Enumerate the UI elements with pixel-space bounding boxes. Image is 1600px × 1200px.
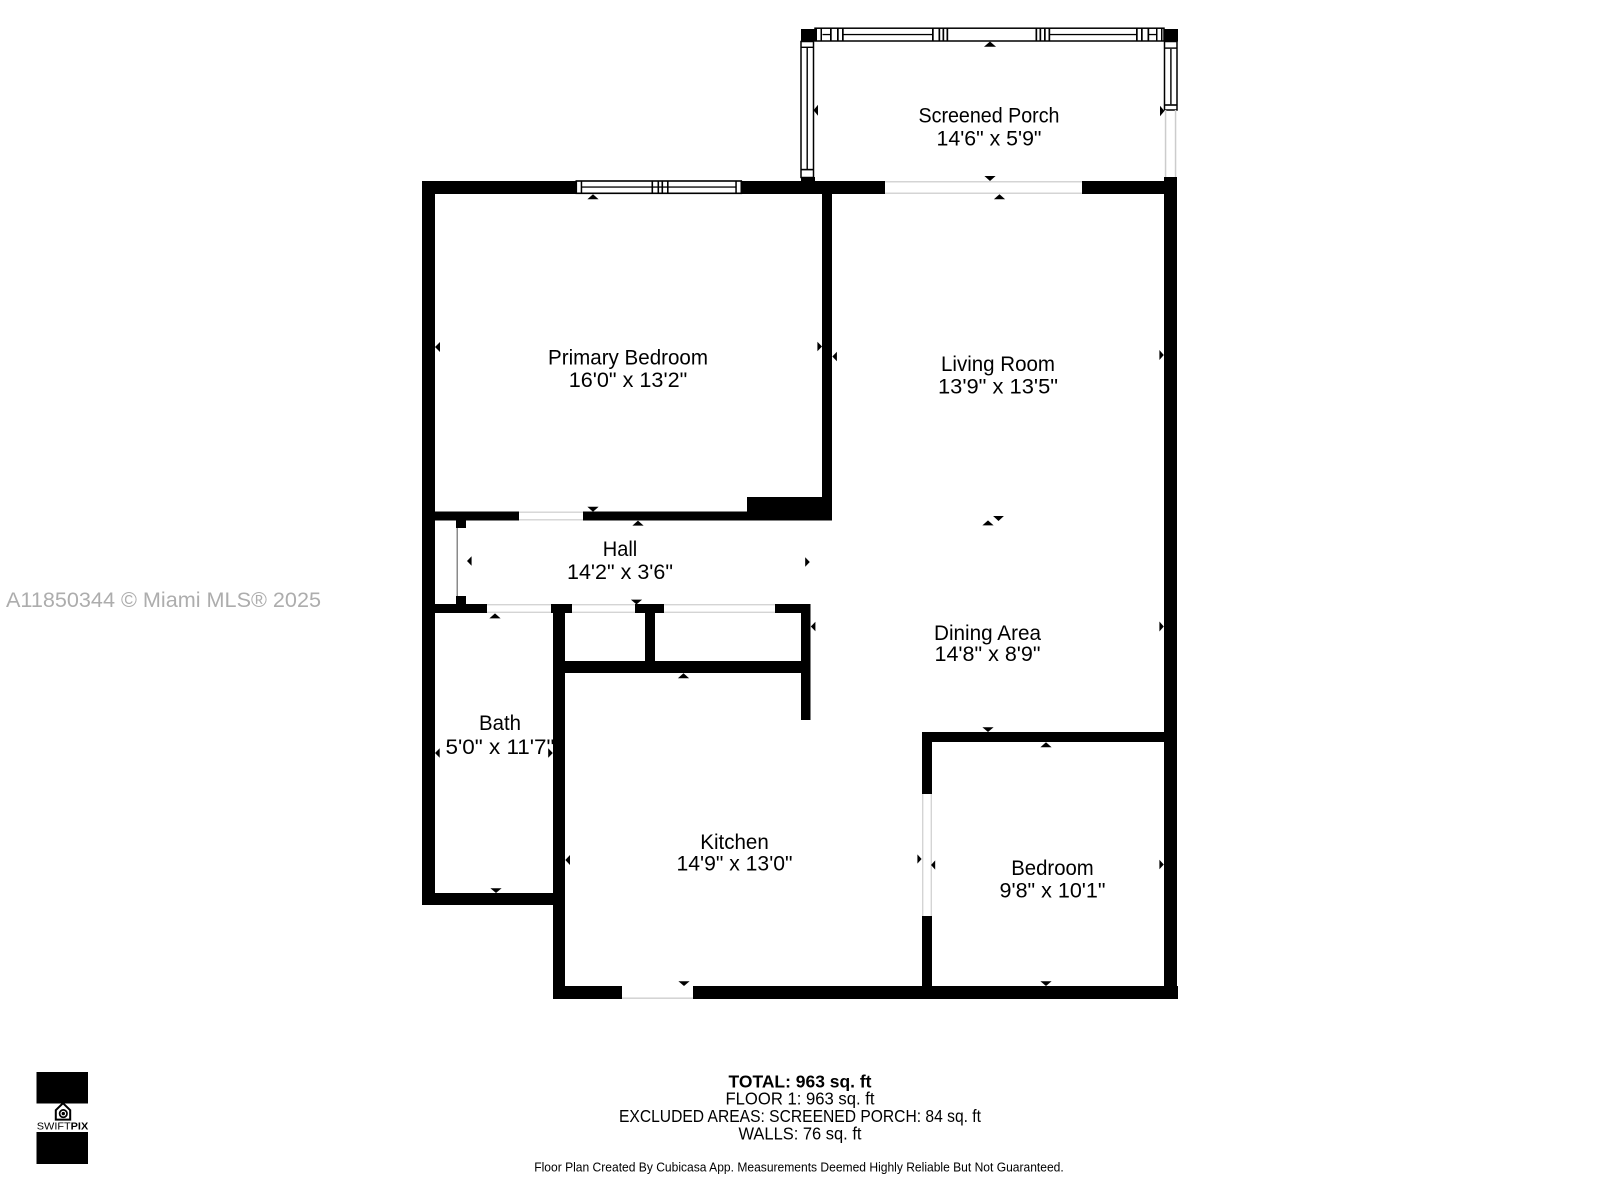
- svg-text:Floor Plan Created By Cubicasa: Floor Plan Created By Cubicasa App. Meas…: [534, 1159, 1064, 1174]
- svg-text:13'9" x 13'5": 13'9" x 13'5": [938, 376, 1058, 399]
- svg-text:9'8" x 10'1": 9'8" x 10'1": [1000, 880, 1106, 903]
- svg-text:A11850344 © Miami MLS® 2025: A11850344 © Miami MLS® 2025: [6, 589, 321, 612]
- svg-text:14'9" x 13'0": 14'9" x 13'0": [677, 853, 793, 876]
- svg-text:Dining Area: Dining Area: [934, 622, 1041, 645]
- svg-text:WALLS: 76 sq. ft: WALLS: 76 sq. ft: [739, 1124, 862, 1144]
- svg-text:Bedroom: Bedroom: [1011, 857, 1094, 880]
- svg-text:Kitchen: Kitchen: [700, 831, 769, 854]
- svg-text:16'0" x 13'2": 16'0" x 13'2": [569, 369, 688, 392]
- svg-text:Primary Bedroom: Primary Bedroom: [548, 347, 708, 370]
- svg-text:SWIFTPIX: SWIFTPIX: [37, 1121, 89, 1132]
- svg-text:14'6" x 5'9": 14'6" x 5'9": [937, 128, 1042, 151]
- svg-text:Bath: Bath: [479, 712, 521, 735]
- svg-text:Screened Porch: Screened Porch: [919, 105, 1060, 128]
- svg-text:Hall: Hall: [603, 538, 638, 561]
- svg-text:14'8" x 8'9": 14'8" x 8'9": [935, 643, 1041, 666]
- svg-text:5'0" x 11'7": 5'0" x 11'7": [446, 736, 555, 759]
- svg-text:Living Room: Living Room: [941, 353, 1055, 376]
- svg-text:14'2" x 3'6": 14'2" x 3'6": [567, 561, 673, 584]
